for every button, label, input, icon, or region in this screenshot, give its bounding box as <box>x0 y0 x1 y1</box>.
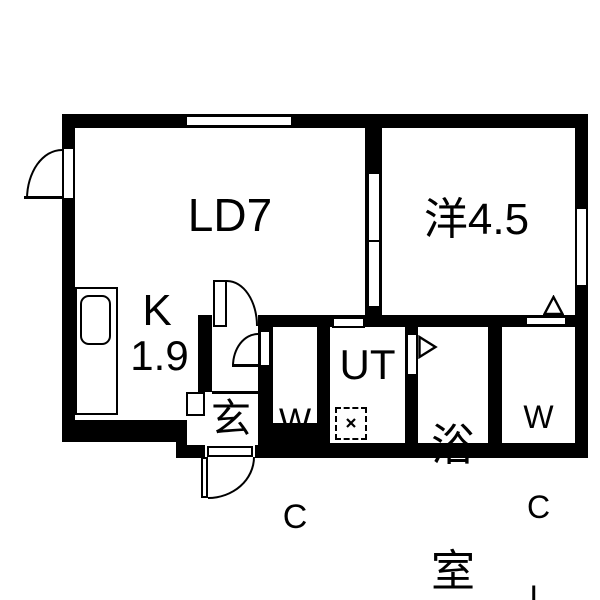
entrance-step-line <box>212 391 258 394</box>
entrance-door-leaf <box>201 457 208 498</box>
kitchen-sink <box>80 295 111 345</box>
entrance-threshold <box>207 446 253 457</box>
label-western-room: 洋4.5 <box>414 198 539 242</box>
label-entrance-hall: 玄 <box>211 399 249 439</box>
window-top <box>185 115 293 127</box>
left-door-opening <box>62 147 75 200</box>
label-kitchen-area: 1.9 <box>122 335 197 377</box>
toilet-door-opening <box>259 330 271 367</box>
label-living-dining: LD7 <box>175 192 285 238</box>
label-walk-in-closet: W C L <box>502 342 575 600</box>
window-right <box>575 207 588 287</box>
left-door-leaf-line <box>24 196 62 199</box>
sliding-door-panel-2 <box>367 240 381 308</box>
entrance-cabinet <box>186 392 205 416</box>
ld-door-leaf <box>213 280 227 327</box>
floor-plan: LD7 洋4.5 K 1.9 W C UT 浴 室 W C L 玄 <box>0 0 600 600</box>
closet-opening <box>525 316 567 326</box>
label-kitchen: K <box>132 289 182 333</box>
wall-kitchen-bottom <box>62 420 187 442</box>
wall-top <box>62 114 588 128</box>
washing-machine-cross-icon <box>345 417 357 429</box>
toilet-door-leaf-line <box>232 364 258 367</box>
utility-opening <box>332 317 365 328</box>
sliding-door-panel-1 <box>367 172 381 242</box>
entrance-door-swing-arc <box>208 457 255 499</box>
label-utility: UT <box>330 344 405 386</box>
bathroom-door-leaf <box>406 333 418 376</box>
closet-door-triangle-icon <box>543 295 564 316</box>
label-toilet: W C <box>273 341 317 597</box>
left-door-swing-arc <box>26 149 62 199</box>
label-bathroom: 浴 室 <box>418 341 488 600</box>
